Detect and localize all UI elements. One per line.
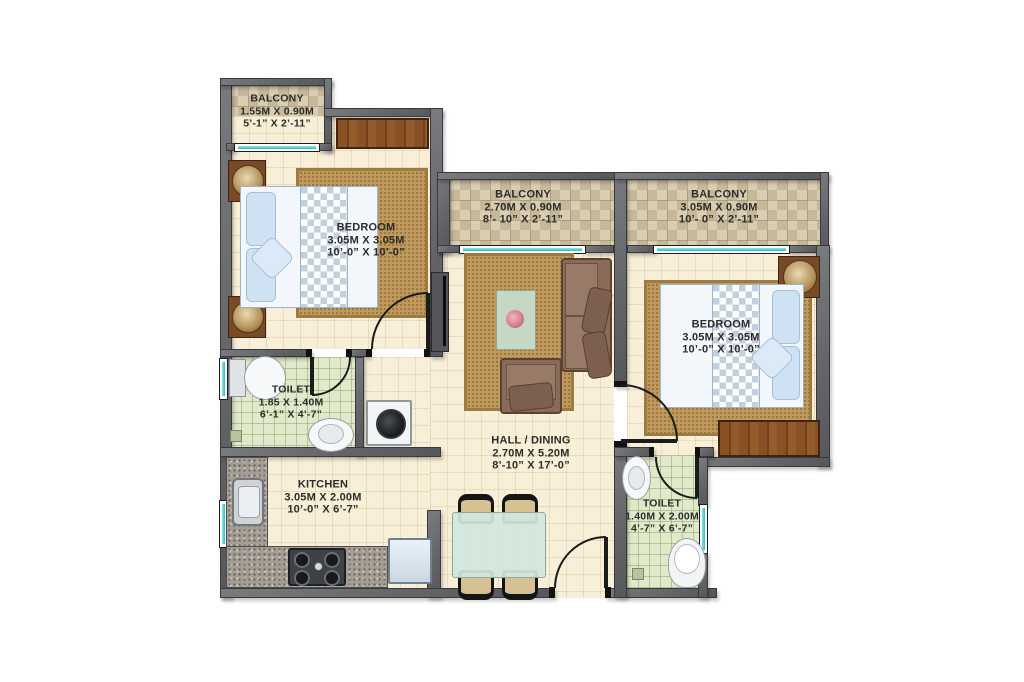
window [219,358,228,400]
armchair-cushion [508,382,554,412]
wall-divider-upper [614,172,627,387]
door-jamb [614,441,627,447]
floor-plan: BALCONY 1.55M X 0.90M 5’-1” X 2’-11” BED… [0,0,1024,682]
door-jamb [306,349,312,357]
wardrobe [336,118,429,149]
wall-hall-top-stub-l [437,245,461,253]
stove-burner [324,570,340,586]
door-jamb [605,587,611,598]
room-label-toilet-2: TOILET 1.40M X 2.00M 4’-7” X 6’-7” [625,497,699,535]
door-jamb [649,447,654,457]
tv-screen [443,276,446,346]
stove-knob [314,562,323,571]
washbasin-bowl [628,466,645,490]
wall-balcony2-left [437,172,450,253]
flower-vase-icon [506,310,524,328]
room-label-balcony-middle: BALCONY 2.70M X 0.90M 8’- 10” X 2’-11” [483,188,563,226]
room-label-kitchen: KITCHEN 3.05M X 2.00M 10’-0” X 6’-7” [284,478,361,516]
door-jamb [424,349,430,357]
washbasin-bowl [318,424,344,444]
stove-burner [294,552,310,568]
room-label-toilet-1: TOILET 1.85 X 1.40M 6’-1” X 4’-7” [259,383,324,421]
window [234,143,320,152]
wall-balcony3-right [820,172,829,253]
wall-balcony1-top [220,78,332,86]
wall-bedroom2-bottom [698,457,830,467]
pillow [772,290,800,344]
refrigerator [388,538,432,584]
wall-bedroom2-top-stub-l [627,245,655,253]
washing-machine-drum [376,409,406,439]
wall-balcony2-top [437,172,622,180]
wall-balcony3-top [614,172,829,180]
room-label-balcony-top-left: BALCONY 1.55M X 0.90M 5’-1” X 2’-11” [240,92,314,130]
door-jamb [695,447,700,457]
floor-drain [230,430,242,442]
dining-table [452,512,546,578]
door-jamb [549,587,555,598]
door-jamb [366,349,372,357]
door-jamb [614,381,627,387]
stove-burner [294,570,310,586]
wall-toilet2-right-a [698,457,708,506]
wardrobe [718,420,820,457]
stove-burner [324,552,340,568]
door-jamb [346,349,352,357]
floor-drain [632,568,644,580]
wall-wardrobe1-top [324,108,442,117]
room-label-balcony-right: BALCONY 3.05M X 0.90M 10’- 0” X 2’-11” [679,188,759,226]
room-label-hall-dining: HALL / DINING 2.70M X 5.20M 8’-10” X 17’… [491,434,570,472]
kitchen-sink-basin [238,486,260,518]
wall-bedroom2-top-stub-r [788,245,818,253]
tv-unit [431,272,449,352]
wall-balcony1-sill-r [318,143,332,151]
window [653,245,790,254]
wall-toilet1-right [355,357,364,456]
toilet-wc-seat [674,544,700,574]
room-label-bedroom-2: BEDROOM 3.05M X 3.05M 10’-0” X 10’-0” [682,318,760,356]
wall-hall-top-stub-r [584,245,614,253]
room-label-bedroom-1: BEDROOM 3.05M X 3.05M 10’-0” X 10’-0” [327,221,405,259]
